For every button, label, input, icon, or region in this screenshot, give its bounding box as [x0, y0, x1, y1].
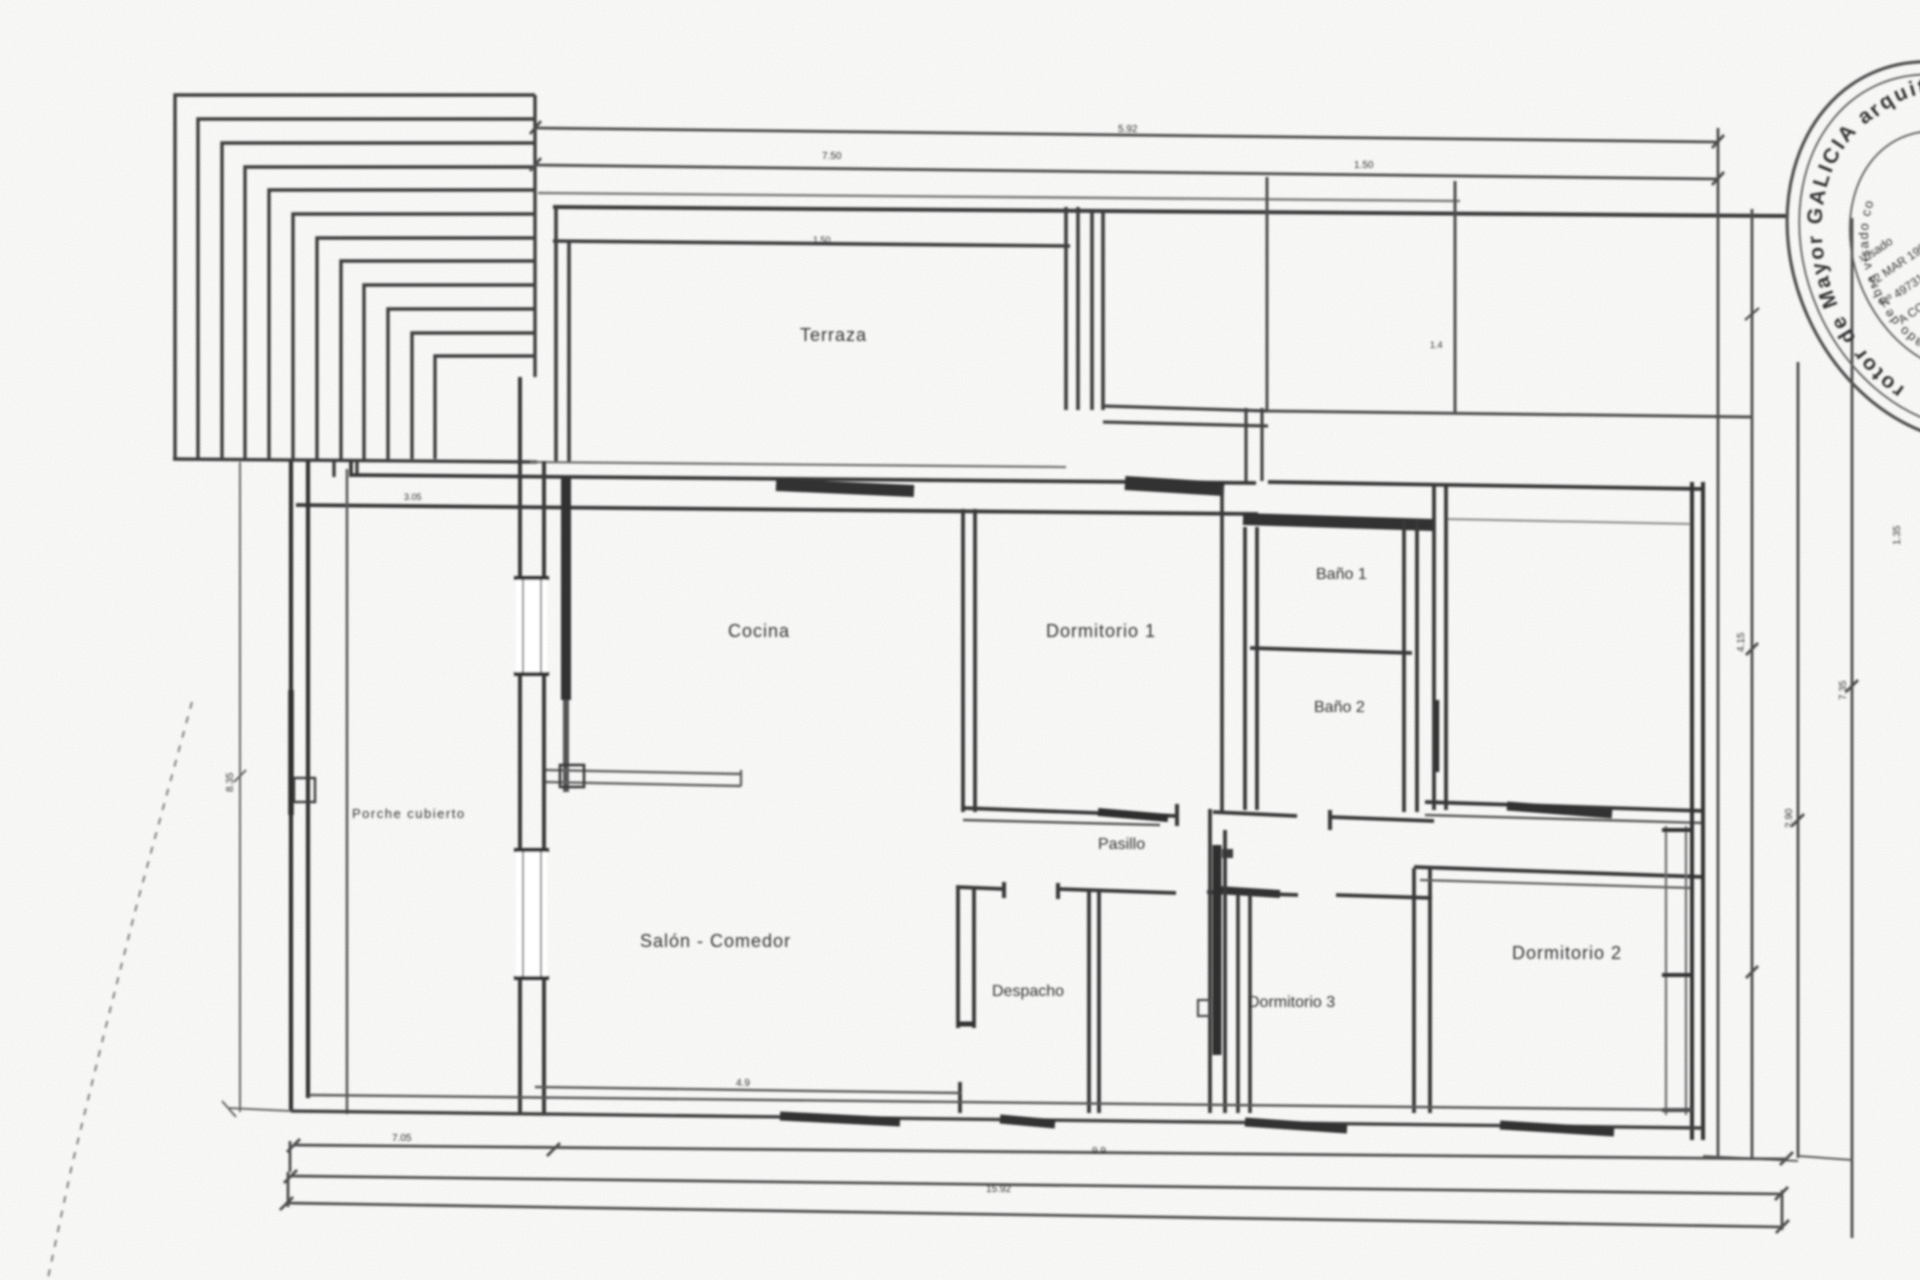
svg-text:Pasillo: Pasillo	[1098, 836, 1145, 853]
svg-text:9.9: 9.9	[1092, 1146, 1106, 1157]
svg-text:Terraza: Terraza	[800, 325, 867, 345]
svg-text:Cocina: Cocina	[728, 621, 790, 641]
svg-text:7.35: 7.35	[1838, 680, 1849, 700]
svg-text:Baño 2: Baño 2	[1314, 699, 1365, 716]
svg-text:7.50: 7.50	[822, 151, 842, 162]
svg-text:1.35: 1.35	[1892, 525, 1903, 545]
svg-text:1.4: 1.4	[1430, 340, 1443, 350]
svg-text:Dormitorio 1: Dormitorio 1	[1046, 621, 1156, 641]
svg-text:4.15: 4.15	[1736, 632, 1747, 652]
svg-text:Baño 1: Baño 1	[1316, 566, 1367, 583]
svg-text:1.50: 1.50	[1354, 160, 1374, 171]
svg-text:3.05: 3.05	[404, 492, 422, 502]
svg-text:5.92: 5.92	[1118, 124, 1138, 135]
svg-text:1.50: 1.50	[813, 235, 831, 245]
svg-text:4.9: 4.9	[736, 1078, 750, 1089]
svg-text:15.92: 15.92	[986, 1184, 1011, 1195]
svg-text:Porche cubierto: Porche cubierto	[352, 806, 466, 821]
svg-text:Dormitorio 3: Dormitorio 3	[1248, 994, 1335, 1011]
svg-text:Despacho: Despacho	[992, 983, 1064, 1000]
svg-text:8.35: 8.35	[225, 772, 236, 792]
svg-text:Salón - Comedor: Salón - Comedor	[640, 931, 791, 951]
svg-text:2.90: 2.90	[1784, 808, 1795, 828]
svg-text:Dormitorio 2: Dormitorio 2	[1512, 943, 1622, 963]
svg-text:7.05: 7.05	[392, 1133, 412, 1144]
